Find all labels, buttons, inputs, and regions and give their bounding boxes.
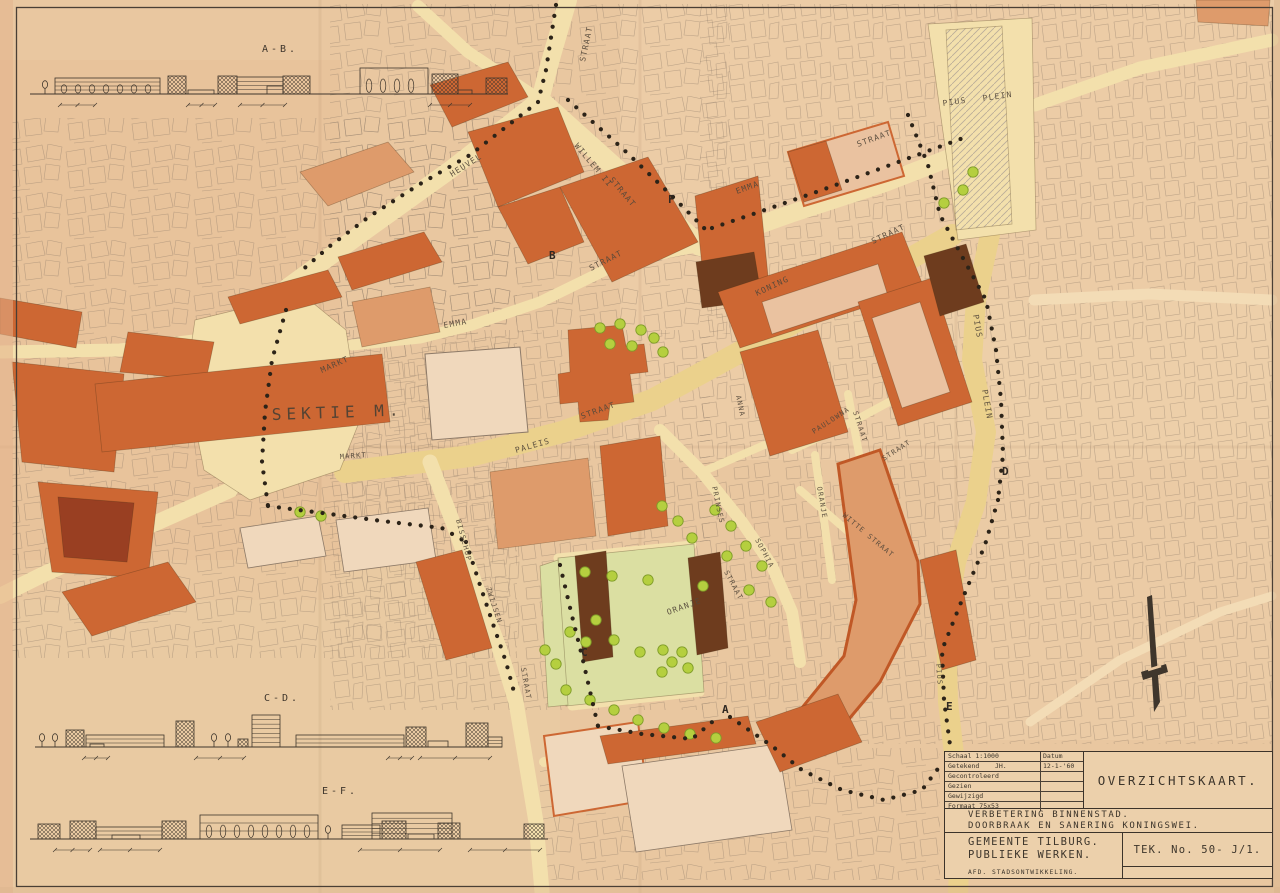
city-block xyxy=(946,26,1012,230)
section-point-marker: B xyxy=(549,249,556,262)
section-title: A-B. xyxy=(262,44,298,55)
tree-icon xyxy=(658,645,668,655)
meta-row: Getekend JH. 12-1-'60 xyxy=(945,762,1083,772)
tree-icon xyxy=(649,333,659,343)
street xyxy=(1034,294,1272,300)
project-title-line1: VERBETERING BINNENSTAD. xyxy=(968,810,1272,821)
drawing-number: TEK. No. 50- J/1. xyxy=(1123,833,1272,867)
tree-icon xyxy=(609,705,619,715)
section-point-marker: E xyxy=(946,700,953,713)
tree-icon xyxy=(561,685,571,695)
tree-icon xyxy=(635,647,645,657)
tree-icon xyxy=(741,541,751,551)
meta-label: Schaal 1:1000 xyxy=(945,752,1041,761)
tree-icon xyxy=(726,521,736,531)
tree-icon xyxy=(667,657,677,667)
city-block xyxy=(425,347,528,440)
meta-row: Gecontroleerd xyxy=(945,772,1083,782)
meta-row: Gezien xyxy=(945,782,1083,792)
map-type-label: OVERZICHTSKAART. xyxy=(1084,752,1272,808)
tree-icon xyxy=(958,185,968,195)
meta-value: 12-1-'60 xyxy=(1041,762,1083,771)
title-block: Schaal 1:1000 Datum Getekend JH. 12-1-'6… xyxy=(944,751,1273,879)
tree-icon xyxy=(605,339,615,349)
org-name: GEMEENTE TILBURG. PUBLIEKE WERKEN. AFD. … xyxy=(945,833,1123,878)
tree-icon xyxy=(687,533,697,543)
tree-icon xyxy=(595,323,605,333)
org-line2: PUBLIEKE WERKEN. xyxy=(968,849,1122,862)
city-block xyxy=(58,497,134,562)
tree-icon xyxy=(657,667,667,677)
map-sheet: STRAATWILLEM IISTRAATHEUVELEMMASTRAATEMM… xyxy=(0,0,1280,893)
tree-icon xyxy=(636,325,646,335)
tree-icon xyxy=(609,635,619,645)
section-point-marker: A xyxy=(722,703,729,716)
org-department: AFD. STADSONTWIKKELING. xyxy=(968,869,1078,876)
tree-icon xyxy=(659,723,669,733)
tree-icon xyxy=(673,516,683,526)
meta-label: Getekend JH. xyxy=(945,762,1041,771)
tree-icon xyxy=(939,198,949,208)
project-title: VERBETERING BINNENSTAD. DOORBRAAK EN SAN… xyxy=(945,809,1272,833)
meta-value xyxy=(1041,792,1083,801)
tree-icon xyxy=(766,597,776,607)
tree-icon xyxy=(711,733,721,743)
tree-icon xyxy=(658,347,668,357)
drawing-number-cell: TEK. No. 50- J/1. xyxy=(1123,833,1272,878)
section-point-marker: D xyxy=(1002,465,1009,478)
city-block xyxy=(1196,0,1270,26)
tree-icon xyxy=(677,647,687,657)
tree-icon xyxy=(643,575,653,585)
tree-icon xyxy=(580,567,590,577)
tree-icon xyxy=(540,645,550,655)
project-title-line2: DOORBRAAK EN SANERING KONINGSWEI. xyxy=(968,821,1272,832)
title-block-bottom: GEMEENTE TILBURG. PUBLIEKE WERKEN. AFD. … xyxy=(945,833,1272,878)
tree-icon xyxy=(744,585,754,595)
tree-icon xyxy=(615,319,625,329)
tree-icon xyxy=(657,501,667,511)
section-title: E-F. xyxy=(322,786,358,797)
meta-row: Schaal 1:1000 Datum xyxy=(945,752,1083,762)
tree-icon xyxy=(607,571,617,581)
tree-icon xyxy=(551,659,561,669)
org-line1: GEMEENTE TILBURG. xyxy=(968,836,1122,849)
tree-icon xyxy=(627,341,637,351)
title-block-top: Schaal 1:1000 Datum Getekend JH. 12-1-'6… xyxy=(945,752,1272,809)
section-point-marker: C xyxy=(581,646,588,659)
section-title: C-D. xyxy=(264,693,300,704)
drawing-number-spacer xyxy=(1123,867,1272,878)
meta-value xyxy=(1041,772,1083,781)
meta-row: Gewijzigd xyxy=(945,792,1083,802)
meta-table: Schaal 1:1000 Datum Getekend JH. 12-1-'6… xyxy=(945,752,1084,808)
tree-icon xyxy=(698,581,708,591)
city-block xyxy=(600,436,668,536)
meta-value: Datum xyxy=(1041,752,1083,761)
tree-icon xyxy=(683,663,693,673)
city-block xyxy=(490,458,596,549)
tree-icon xyxy=(968,167,978,177)
tree-icon xyxy=(633,715,643,725)
meta-label: Gezien xyxy=(945,782,1041,791)
section-point-marker: F xyxy=(668,193,675,206)
meta-label: Gecontroleerd xyxy=(945,772,1041,781)
tree-icon xyxy=(722,551,732,561)
tree-icon xyxy=(591,615,601,625)
meta-label: Gewijzigd xyxy=(945,792,1041,801)
meta-value xyxy=(1041,782,1083,791)
